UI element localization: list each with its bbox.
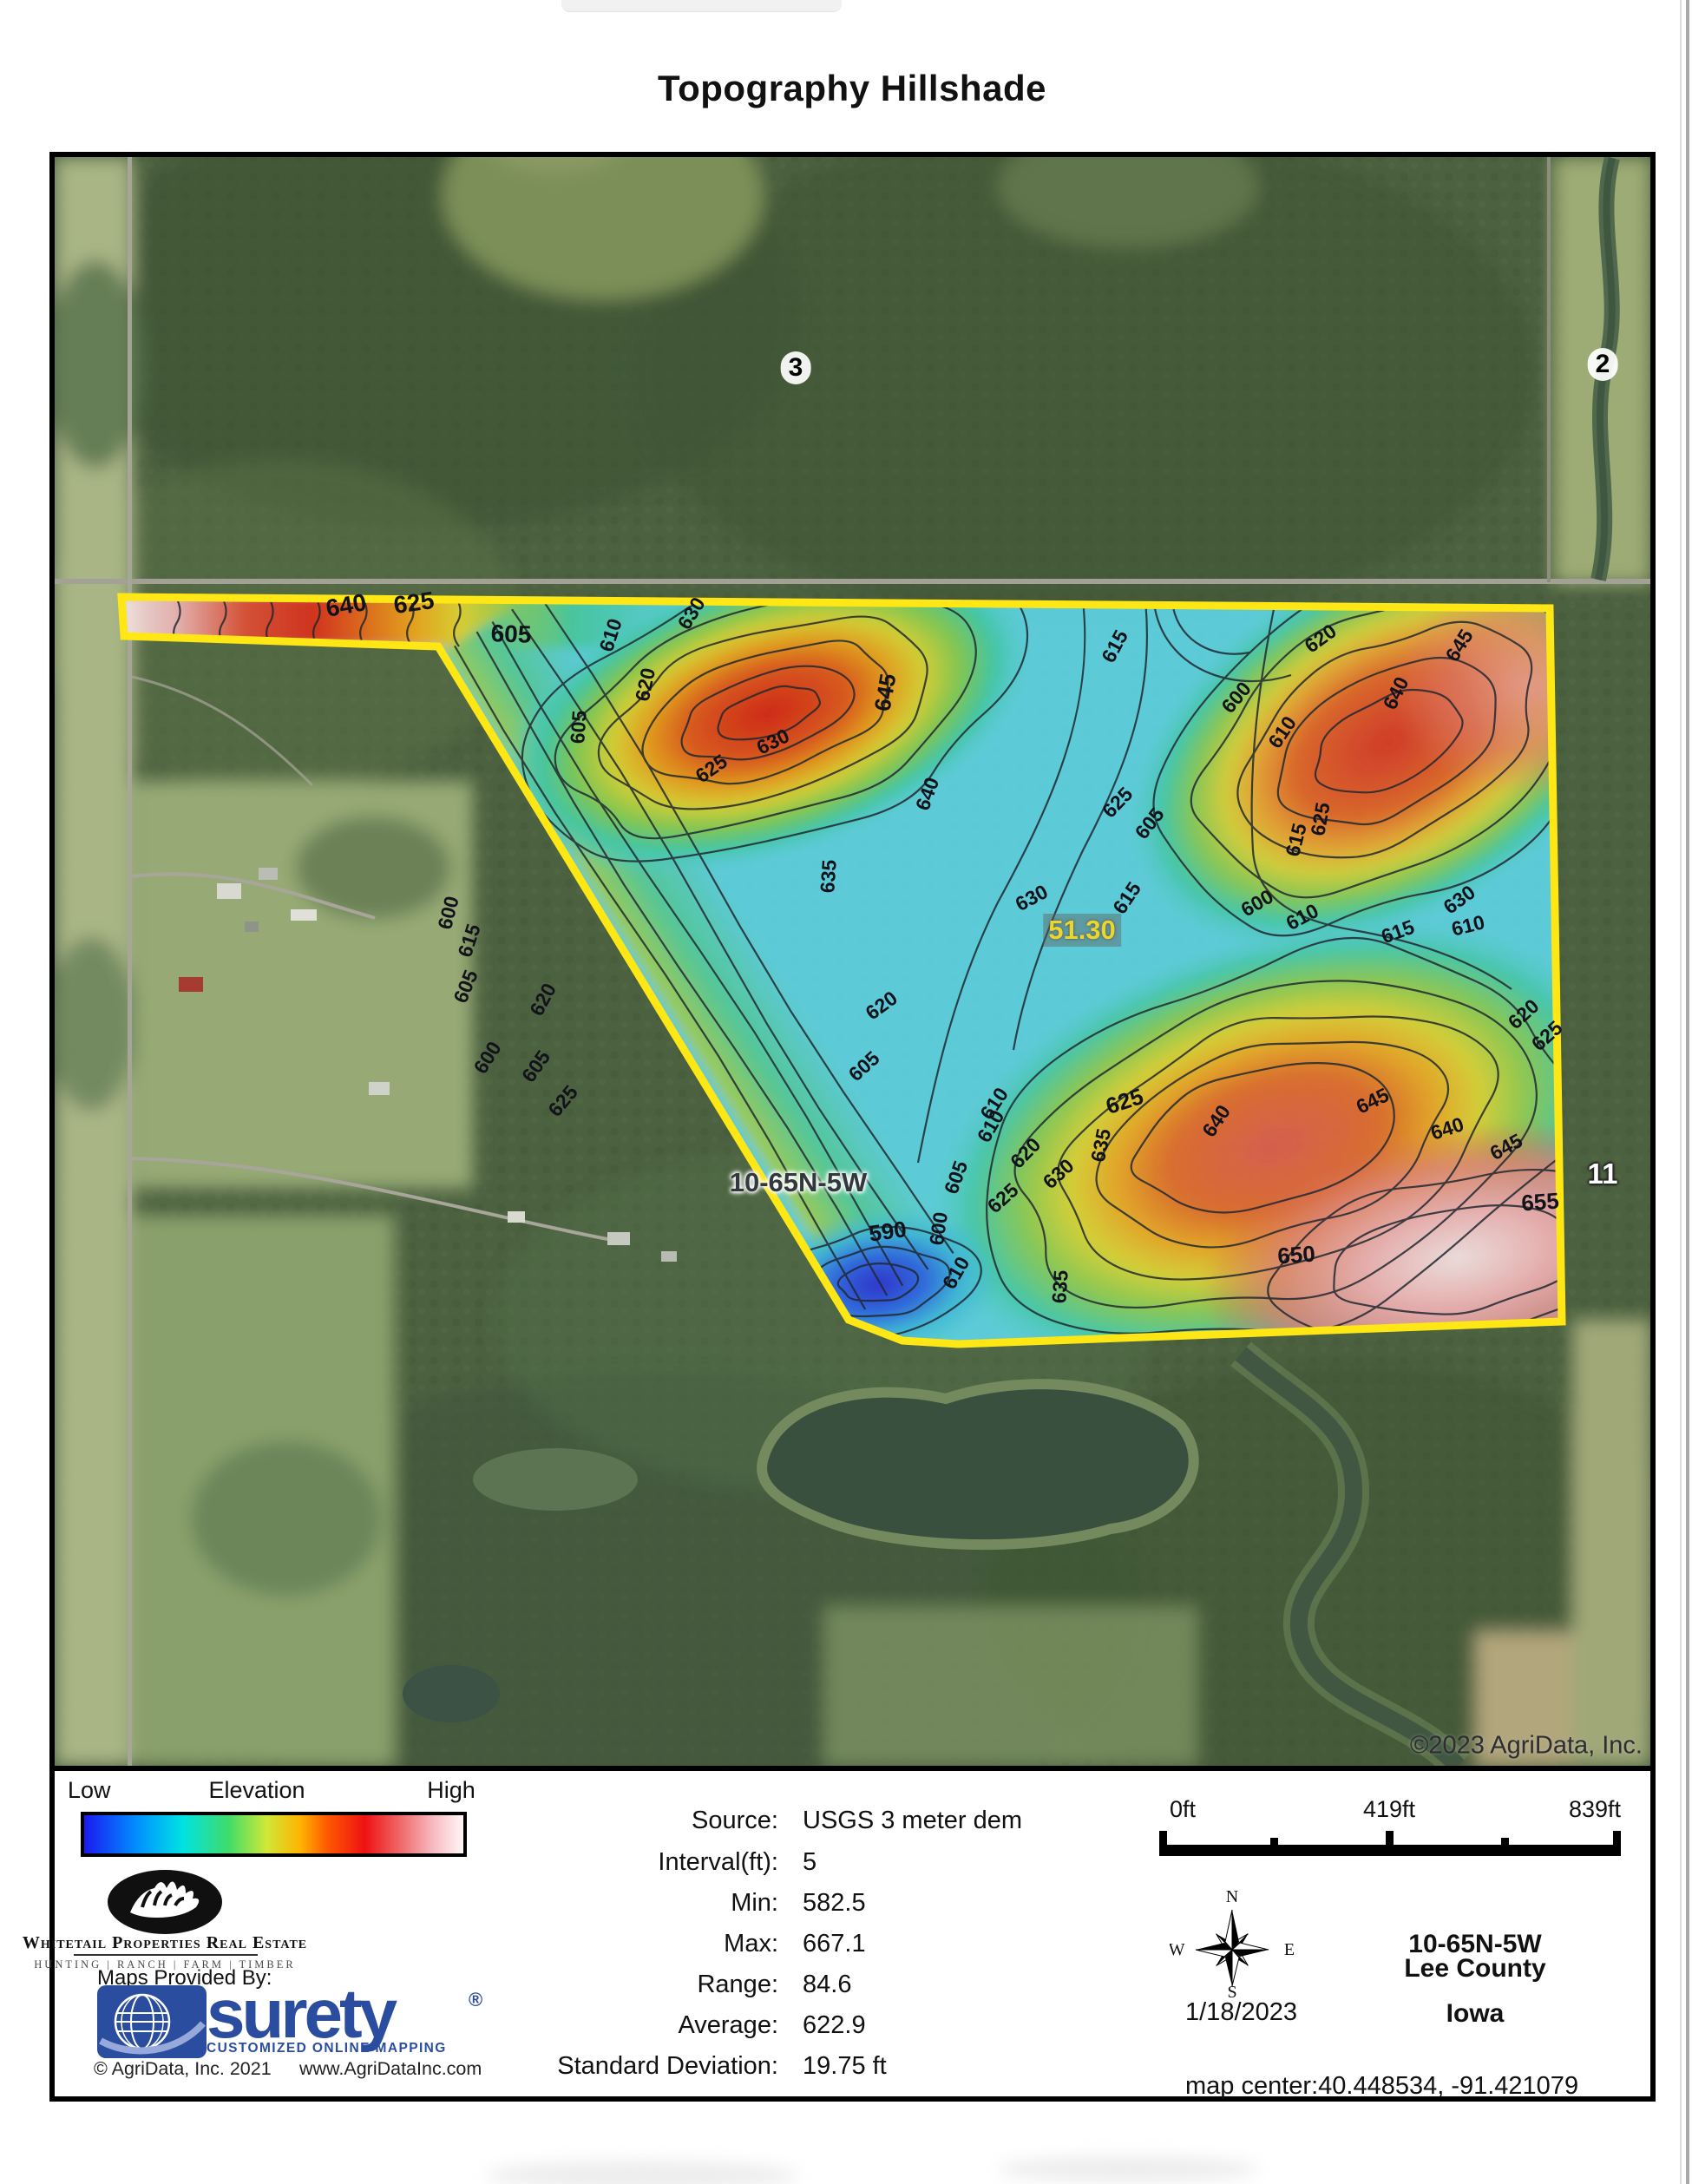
legend-low-label: Low (68, 1777, 111, 1804)
page-title: Topography Hillshade (658, 68, 1046, 109)
section-number: 11 (1588, 1158, 1618, 1190)
stat-label: Range: (451, 1971, 778, 1999)
contour-label: 590 (868, 1217, 908, 1245)
scrollbar[interactable] (1686, 0, 1689, 2184)
contour-label: 625 (392, 588, 436, 618)
map-copyright: ©2023 AgriData, Inc. (1410, 1732, 1643, 1761)
acreage-label: 51.30 (1043, 914, 1121, 947)
stat-value: 19.75 ft (803, 2052, 887, 2081)
section-number: 3 (781, 351, 811, 384)
contour-label: 600 (927, 1210, 951, 1246)
scale-label-0ft: 0ft (1170, 1796, 1196, 1823)
surety-logo-text: surety (207, 1979, 394, 2049)
page-bottom-smudge (998, 2156, 1258, 2182)
agridata-copyright: © AgriData, Inc. 2021 (94, 2058, 272, 2080)
contour-label: 645 (870, 672, 899, 712)
stat-label: Interval(ft): (451, 1848, 778, 1877)
browser-top-smudge (561, 0, 842, 12)
surety-tagline: CUSTOMIZED ONLINE MAPPING (207, 2041, 447, 2056)
legend-high-label: High (427, 1777, 475, 1804)
page-bottom-smudge (486, 2161, 798, 2184)
scale-label-end: 839ft (1569, 1796, 1621, 1823)
stat-label: Source: (451, 1807, 778, 1835)
compass-w-label: W (1170, 1940, 1185, 1959)
stat-value: 5 (803, 1848, 816, 1877)
stat-label: Average: (451, 2011, 778, 2040)
whitetail-name: Whitetail Properties Real Estate (23, 1933, 307, 1953)
stat-value: 622.9 (803, 2011, 866, 2040)
elevation-gradient-bar (81, 1812, 467, 1857)
location-state: Iowa (1446, 1999, 1505, 2029)
stat-label: Max: (451, 1930, 778, 1958)
surety-globe-icon (97, 1985, 207, 2058)
stat-value: USGS 3 meter dem (803, 1807, 1022, 1835)
whitetail-rule (74, 1954, 258, 1956)
legend-title: Elevation (208, 1777, 305, 1804)
contour-label: 655 (1520, 1190, 1559, 1215)
map-date: 1/18/2023 (1185, 1998, 1297, 2027)
compass-e-label: E (1284, 1940, 1295, 1959)
map-panel-divider (55, 1766, 1650, 1771)
stat-label: Min: (451, 1889, 778, 1918)
map-canvas: 6406256056106306206056256306456406356156… (55, 157, 1650, 1766)
stat-label: Standard Deviation: (451, 2052, 778, 2081)
whitetail-logo-icon (104, 1867, 226, 1937)
aerial-topography-image (55, 157, 1650, 1766)
stat-value: 84.6 (803, 1971, 851, 1999)
compass-s-label: S (1227, 1983, 1236, 1998)
location-county: Lee County (1404, 1954, 1545, 1984)
contour-label: 605 (490, 621, 532, 647)
map-center-coordinates: map center:40.448534, -91.421079 (1185, 2072, 1578, 2101)
contour-label: 650 (1276, 1243, 1315, 1268)
map-plss-label: 10-65N-5W (730, 1167, 868, 1198)
scrollbar-rail (1680, 0, 1682, 2184)
stat-value: 667.1 (803, 1930, 866, 1958)
compass-rose-icon: N S W E (1170, 1890, 1295, 1998)
contour-label: 635 (1049, 1269, 1072, 1304)
report-page: Topography Hillshade (0, 0, 1692, 2184)
contour-label: 635 (817, 859, 840, 894)
scale-bar (1159, 1831, 1621, 1859)
compass-n-label: N (1226, 1890, 1238, 1906)
stat-value: 582.5 (803, 1889, 866, 1918)
scale-label-mid: 419ft (1363, 1796, 1415, 1823)
section-number: 2 (1588, 348, 1618, 381)
contour-label: 605 (567, 710, 590, 744)
